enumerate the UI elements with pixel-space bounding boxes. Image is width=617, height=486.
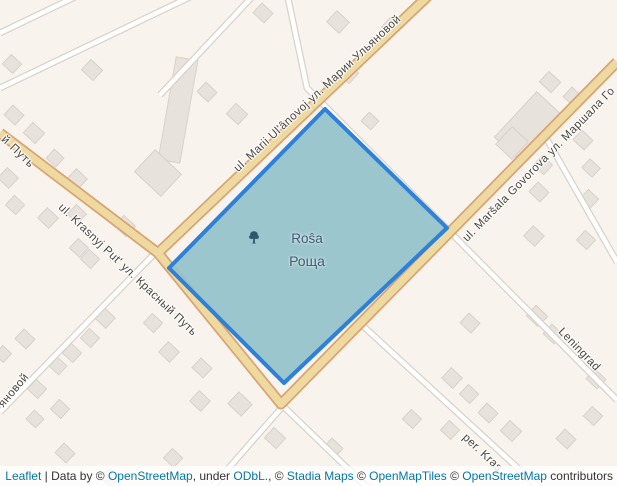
stadia-maps-link[interactable]: Stadia Maps	[287, 469, 354, 483]
openstreetmap-link[interactable]: OpenStreetMap	[108, 469, 193, 483]
attribution-text: , ©	[268, 469, 287, 483]
leaflet-link[interactable]: Leaflet	[5, 469, 41, 483]
map-tiles-layer	[0, 0, 617, 486]
openstreetmap-contributors-link[interactable]: OpenStreetMap	[462, 469, 547, 483]
attribution-text: ©	[447, 469, 463, 483]
attribution-text: , under	[193, 469, 234, 483]
attribution-text: ©	[354, 469, 370, 483]
map-canvas[interactable]: ul. Marii Ulʹânovoj ул. Марии Ульяновой …	[0, 0, 617, 486]
attribution-text: | Data by ©	[41, 469, 108, 483]
openmaptiles-link[interactable]: OpenMapTiles	[369, 469, 447, 483]
attribution-text: contributors	[547, 469, 613, 483]
attribution-bar: Leaflet | Data by © OpenStreetMap, under…	[0, 466, 617, 486]
odbl-link[interactable]: ODbL.	[233, 469, 268, 483]
